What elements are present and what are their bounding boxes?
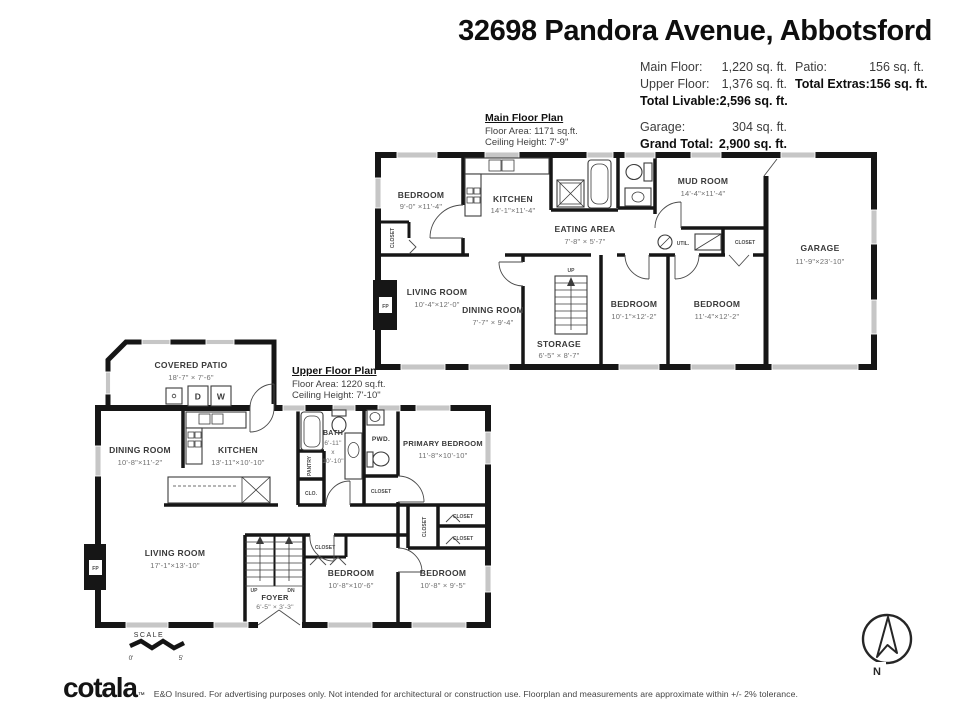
stat-label: Main Floor: — [640, 59, 703, 76]
stat-value: 2,596 sq. ft. — [720, 93, 788, 110]
pwd-label: PWD. — [372, 436, 390, 443]
main-stairs: UP — [555, 268, 587, 334]
main-plan-floor-area: Floor Area: 1171 sq.ft. — [485, 126, 578, 138]
trademark-mark: ™ — [138, 692, 145, 699]
garage-door — [772, 364, 858, 370]
stat-label: Upper Floor: — [640, 76, 709, 93]
room-foyer: FOYER — [261, 593, 289, 602]
room-kitchen-dims: 13'-11"×10'-10" — [211, 458, 265, 467]
room-storage: STORAGE — [537, 339, 581, 349]
main-floor-plan-label: Main Floor Plan Floor Area: 1171 sq.ft. … — [485, 113, 578, 149]
closet-label: CLOSET — [390, 228, 396, 248]
stat-total-extras: Total Extras: 156 sq. ft. — [795, 76, 924, 93]
room-bath-dims-x: x — [331, 449, 335, 456]
closet-label: CLOSET — [422, 517, 428, 537]
stairs-up-label: UP — [568, 268, 576, 274]
main-fireplace: FP — [373, 280, 397, 330]
room-bedroom-1-dims: 10'-8"×10'-6" — [328, 581, 373, 590]
room-foyer-dims: 6'-5" × 3'-3" — [256, 604, 294, 611]
stat-value: 156 sq. ft. — [870, 76, 928, 93]
fireplace-label: FP — [382, 304, 389, 310]
room-kitchen-dims: 14'-1"×11'-4" — [491, 206, 536, 215]
powder-toilet-icon — [367, 452, 389, 467]
north-label: N — [873, 666, 881, 678]
room-bedroom-nw-dims: 9'-0" ×11'-4" — [400, 202, 443, 211]
area-summary-right: Patio: 156 sq. ft. Total Extras: 156 sq.… — [795, 59, 924, 93]
room-mud-room-dims: 14'-4"×11'-4" — [681, 189, 726, 198]
room-primary-bedroom-dims: 11'-8"×10'-10" — [418, 451, 467, 460]
cotala-logo: cotala — [63, 672, 137, 704]
room-dining: DINING ROOM — [109, 445, 171, 455]
upper-stairs: UP DN — [245, 535, 304, 594]
scale-label: SCALE — [134, 632, 164, 639]
bathtub-icon — [588, 160, 611, 208]
room-bedroom-1: BEDROOM — [328, 568, 375, 578]
stat-upper-floor: Upper Floor: 1,376 sq. ft. — [640, 76, 787, 93]
clo-label: CLO. — [305, 491, 318, 497]
room-dining-dims: 7'-7" × 9'-4" — [472, 318, 513, 327]
bathtub-icon — [301, 412, 323, 450]
scale-zero: 0' — [129, 655, 134, 662]
scale-bar: SCALE 0' 5' — [118, 627, 198, 667]
stat-value: 304 sq. ft. — [732, 119, 787, 136]
room-eating-area: EATING AREA — [555, 224, 616, 234]
laundry-sink-icon — [166, 388, 182, 404]
room-living-dims: 17'-1"×13'-10" — [150, 561, 200, 570]
room-living-dims: 10'-4"×12'-0" — [414, 300, 459, 309]
room-bedroom-2-dims: 10'-8" × 9'-5" — [420, 581, 466, 590]
closet-label: CLOSET — [315, 545, 335, 551]
kitchen-island — [168, 477, 270, 503]
upper-floor-plan-drawing: D W — [78, 336, 492, 628]
dryer-label: D — [195, 392, 201, 402]
main-bath-fixtures — [557, 160, 652, 208]
closet-label: CLOSET — [453, 536, 473, 542]
stat-total-livable: Total Livable: 2,596 sq. ft. — [640, 93, 787, 110]
north-arrow-icon — [877, 617, 897, 657]
pantry-label: PANTRY — [307, 455, 313, 476]
room-living: LIVING ROOM — [145, 548, 205, 558]
stat-label: Total Livable: — [640, 93, 720, 110]
room-bedroom-s1-dims: 10'-1"×12'-2" — [611, 312, 656, 321]
room-dining-dims: 10'-8"×11'-2" — [118, 458, 163, 467]
upper-room-labels: COVERED PATIO 18'-7" × 7'-6" DINING ROOM… — [109, 360, 483, 611]
main-util-fixtures — [658, 234, 721, 250]
room-primary-bedroom: PRIMARY BEDROOM — [403, 439, 483, 448]
room-mud-room: MUD ROOM — [678, 176, 729, 186]
stat-garage: Garage: 304 sq. ft. — [640, 119, 787, 136]
room-garage-dims: 11'-9"×23'-10" — [795, 257, 844, 266]
stat-label: Total Extras: — [795, 76, 870, 93]
vanity-sink-icon — [625, 188, 651, 206]
disclaimer-text: E&O Insured. For advertising purposes on… — [154, 689, 798, 699]
page-title: 32698 Pandora Avenue, Abbotsford — [458, 15, 932, 48]
main-plan-title: Main Floor Plan — [485, 113, 578, 125]
util-label: UTIL. — [677, 241, 690, 247]
scale-five: 5' — [179, 655, 184, 662]
washer-label: W — [217, 392, 226, 402]
closet-label: CLOSET — [735, 240, 755, 246]
room-bedroom-s2-dims: 11'-4"×12'-2" — [695, 312, 740, 321]
room-living: LIVING ROOM — [407, 287, 467, 297]
room-eating-area-dims: 7'-8" × 5'-7" — [564, 237, 605, 246]
toilet-icon — [626, 163, 652, 181]
room-bedroom-s2: BEDROOM — [694, 299, 741, 309]
main-plan-ceiling-height: Ceiling Height: 7'-9" — [485, 137, 578, 149]
stat-value: 1,220 sq. ft. — [722, 59, 787, 76]
room-garage: GARAGE — [800, 243, 839, 253]
room-bath-dims2: 10'-10" — [322, 458, 344, 465]
stat-value: 156 sq. ft. — [869, 59, 924, 76]
vanity-sink-icon — [345, 433, 362, 479]
closet-label: CLOSET — [371, 489, 391, 495]
shower-icon — [557, 180, 584, 207]
patio-appliances: D W — [166, 386, 231, 406]
room-covered-patio-dims: 18'-7" × 7'-6" — [168, 373, 214, 382]
room-covered-patio: COVERED PATIO — [154, 360, 227, 370]
room-bath-dims1: 6'-11" — [324, 440, 342, 447]
upper-bath-fixtures — [301, 410, 389, 479]
fireplace-label: FP — [92, 566, 99, 572]
room-bedroom-nw: BEDROOM — [398, 190, 445, 200]
powder-sink-icon — [367, 410, 384, 425]
room-kitchen: KITCHEN — [218, 445, 258, 455]
stat-value: 1,376 sq. ft. — [722, 76, 787, 93]
area-summary-left: Main Floor: 1,220 sq. ft. Upper Floor: 1… — [640, 59, 787, 153]
upper-fireplace: FP — [84, 544, 106, 590]
closet-label: CLOSET — [453, 514, 473, 520]
room-bedroom-2: BEDROOM — [420, 568, 467, 578]
footer: cotala ™ E&O Insured. For advertising pu… — [63, 672, 798, 704]
north-arrow: N — [855, 606, 919, 680]
scale-zigzag-icon — [130, 641, 184, 648]
stairs-up-label: UP — [251, 588, 259, 594]
room-bedroom-s1: BEDROOM — [611, 299, 658, 309]
room-kitchen: KITCHEN — [493, 194, 533, 204]
floorplan-sheet: 32698 Pandora Avenue, Abbotsford Main Fl… — [0, 0, 960, 720]
stat-label: Patio: — [795, 59, 827, 76]
room-dining: DINING ROOM — [462, 305, 524, 315]
stat-label: Garage: — [640, 119, 685, 136]
stat-main-floor: Main Floor: 1,220 sq. ft. — [640, 59, 787, 76]
room-bath: BATH — [323, 430, 343, 437]
room-storage-dims: 6'-5" × 8'-7" — [538, 351, 579, 360]
stat-patio: Patio: 156 sq. ft. — [795, 59, 924, 76]
